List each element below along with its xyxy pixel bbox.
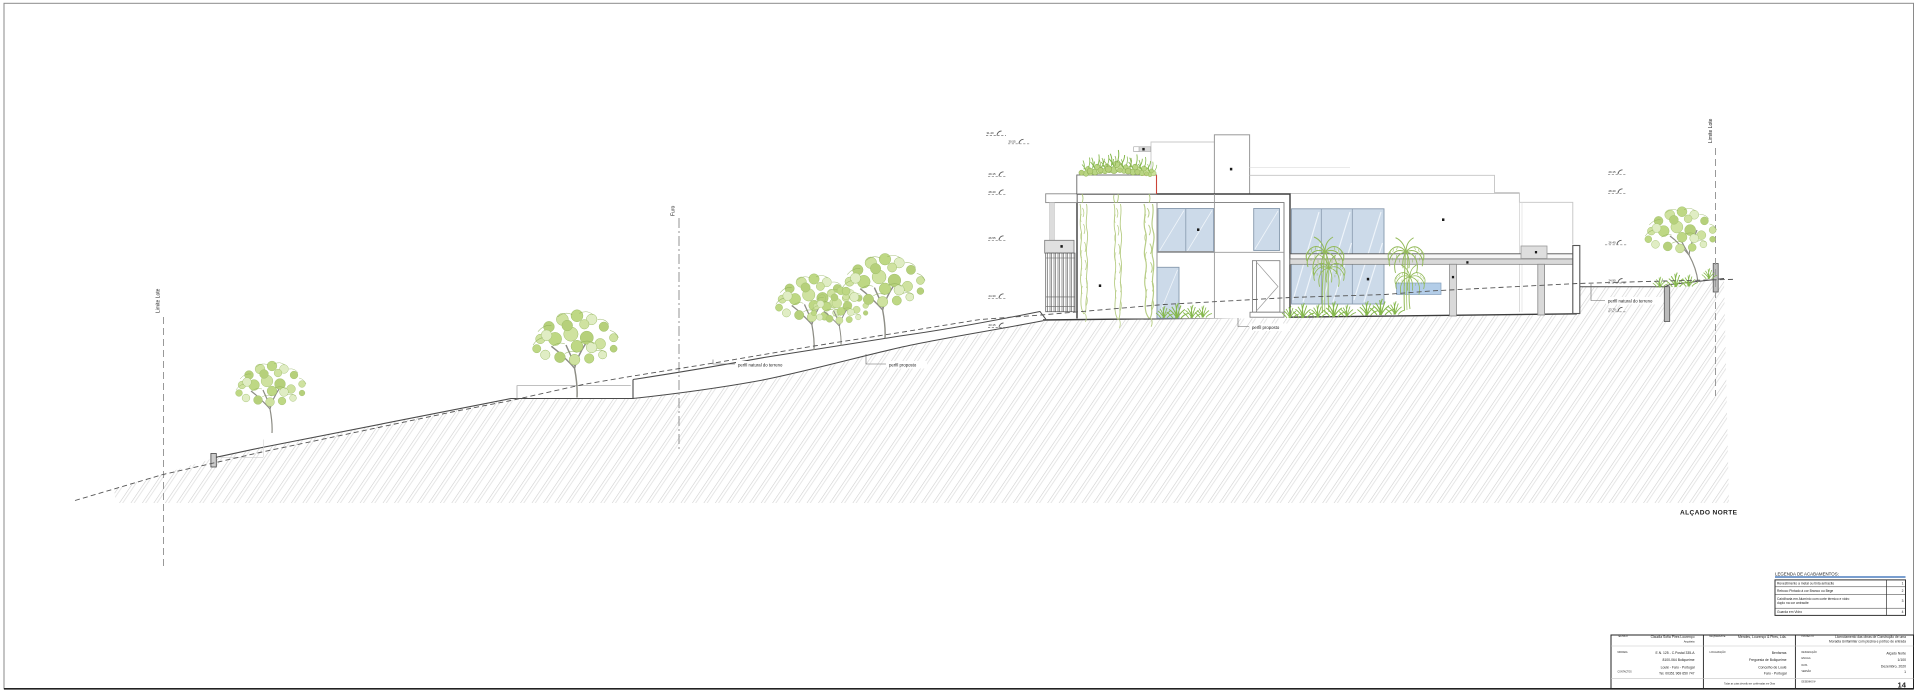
svg-text:26.40: 26.40 — [1609, 240, 1616, 244]
svg-text:LOCALIZAÇÃO: LOCALIZAÇÃO — [1710, 651, 1726, 654]
svg-text:30.55: 30.55 — [1009, 139, 1016, 143]
svg-text:1: 1 — [1902, 582, 1904, 586]
svg-text:perfil proposto: perfil proposto — [889, 363, 917, 368]
svg-text:ESCALA: ESCALA — [1802, 657, 1812, 660]
svg-text:Moradia Unifamiliar com piscin: Moradia Unifamiliar com piscina e pórtic… — [1829, 639, 1906, 643]
svg-text:Limite Lote: Limite Lote — [156, 288, 162, 313]
svg-text:2: 2 — [1902, 589, 1904, 593]
svg-text:CONTACTOS: CONTACTOS — [1618, 670, 1633, 673]
svg-text:Alçado Norte: Alçado Norte — [1886, 652, 1906, 656]
svg-text:26.55: 26.55 — [989, 236, 996, 240]
svg-text:perfil natural do terreno: perfil natural do terreno — [738, 363, 783, 368]
svg-text:VERSÃO: VERSÃO — [1802, 670, 1812, 673]
svg-text:3: 3 — [1902, 599, 1904, 603]
svg-text:Concelho de Loulé: Concelho de Loulé — [1758, 666, 1786, 670]
svg-text:24.30: 24.30 — [989, 294, 996, 298]
svg-text:Loulé - Faro - Portugal: Loulé - Faro - Portugal — [1661, 666, 1695, 670]
svg-text:23.70: 23.70 — [1609, 307, 1616, 311]
svg-text:Todas as cotas deverão ser con: Todas as cotas deverão ser confirmadas e… — [1724, 683, 1776, 686]
svg-text:duplo na cor antracite: duplo na cor antracite — [1777, 601, 1809, 605]
svg-text:23.15: 23.15 — [989, 323, 996, 327]
svg-text:Arquiteta: Arquiteta — [1684, 639, 1695, 643]
svg-text:Freguesia de Boliqueime: Freguesia de Boliqueime — [1749, 658, 1787, 662]
svg-text:31.40: 31.40 — [987, 131, 994, 135]
svg-text:Benfarras: Benfarras — [1772, 651, 1787, 655]
svg-text:1/100: 1/100 — [1898, 658, 1907, 662]
svg-text:24.90: 24.90 — [1609, 279, 1616, 283]
svg-text:Reboco Pintado à cor Branco ou: Reboco Pintado à cor Branco ou Bege — [1777, 589, 1833, 593]
svg-text:DESIGNAÇÃO: DESIGNAÇÃO — [1802, 651, 1818, 654]
svg-text:MORADA: MORADA — [1618, 651, 1629, 654]
svg-text:ALÇADO NORTE: ALÇADO NORTE — [1680, 510, 1738, 517]
svg-text:14: 14 — [1898, 680, 1907, 689]
svg-text:Revestimento a metal ou tinta: Revestimento a metal ou tinta antracite — [1777, 582, 1834, 586]
svg-text:28.40: 28.40 — [1609, 189, 1616, 193]
svg-text:TÉCNICO: TÉCNICO — [1618, 635, 1629, 638]
svg-text:29.15: 29.15 — [989, 172, 996, 176]
svg-text:Limite Lote: Limite Lote — [1708, 118, 1714, 143]
svg-text:Dezembro, 2020: Dezembro, 2020 — [1881, 665, 1906, 669]
svg-text:perfil proposto: perfil proposto — [1252, 325, 1280, 330]
svg-text:Furo: Furo — [671, 206, 677, 217]
svg-text:4: 4 — [1902, 610, 1904, 614]
svg-text:Licenciamento das obras de Con: Licenciamento das obras de Construção de… — [1835, 635, 1906, 639]
svg-text:LEGENDA DE ACABAMENTOS:: LEGENDA DE ACABAMENTOS: — [1775, 571, 1839, 576]
svg-text:Faro - Portugal: Faro - Portugal — [1764, 671, 1787, 675]
svg-text:28.40: 28.40 — [989, 190, 996, 194]
svg-text:E.N. 125 - C.Postal 335-A: E.N. 125 - C.Postal 335-A — [1655, 651, 1695, 655]
svg-text:REQUERENTE: REQUERENTE — [1710, 636, 1726, 638]
svg-text:DATA: DATA — [1802, 664, 1808, 667]
svg-text:PROJECTO: PROJECTO — [1802, 636, 1815, 638]
svg-text:Tel. 00351 969 650 747: Tel. 00351 969 650 747 — [1659, 671, 1695, 675]
svg-text:1: 1 — [1904, 670, 1906, 674]
svg-text:8100-064 Boliqueime: 8100-064 Boliqueime — [1662, 658, 1694, 662]
svg-text:perfil natural do terreno: perfil natural do terreno — [1608, 299, 1653, 304]
svg-text:29.15: 29.15 — [1609, 170, 1616, 174]
svg-text:Claudia Sofia Pires Lourenço: Claudia Sofia Pires Lourenço — [1651, 635, 1695, 639]
svg-text:Mendes, Lourenço & Pires, Lda.: Mendes, Lourenço & Pires, Lda. — [1738, 635, 1786, 639]
svg-text:Guarda em Vidro: Guarda em Vidro — [1777, 610, 1802, 614]
